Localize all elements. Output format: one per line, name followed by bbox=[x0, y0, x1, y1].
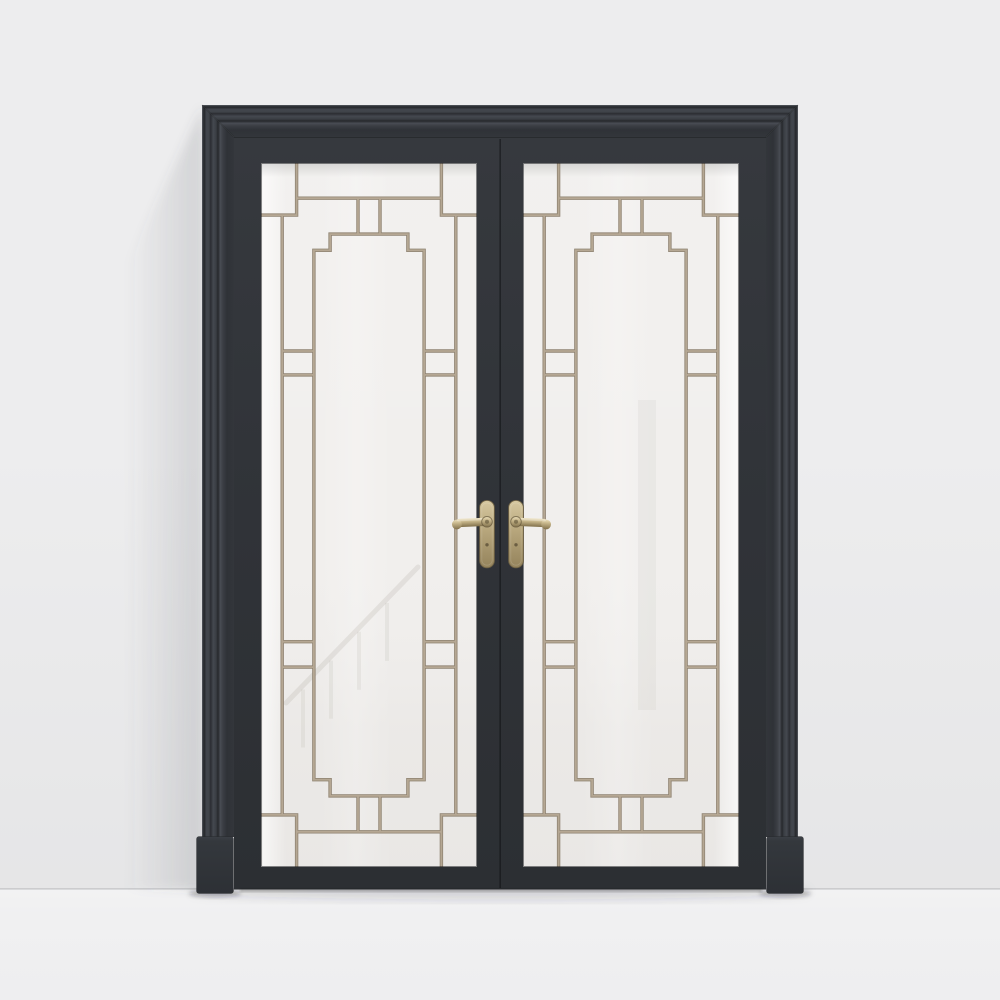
casing-right bbox=[766, 105, 798, 837]
floor bbox=[0, 889, 1000, 1000]
keyhole-icon bbox=[485, 543, 488, 546]
plinth-left bbox=[197, 837, 234, 894]
casing-left bbox=[202, 105, 234, 837]
casing-top bbox=[202, 105, 798, 137]
door-render-scene bbox=[0, 0, 1000, 1000]
glass-panel-right bbox=[523, 163, 739, 867]
under-door-shadow bbox=[240, 889, 762, 892]
glass-panel-left bbox=[261, 163, 477, 867]
plinth-right bbox=[767, 837, 804, 894]
glass-reflection bbox=[638, 400, 656, 710]
handle-pivot-center bbox=[485, 520, 489, 524]
